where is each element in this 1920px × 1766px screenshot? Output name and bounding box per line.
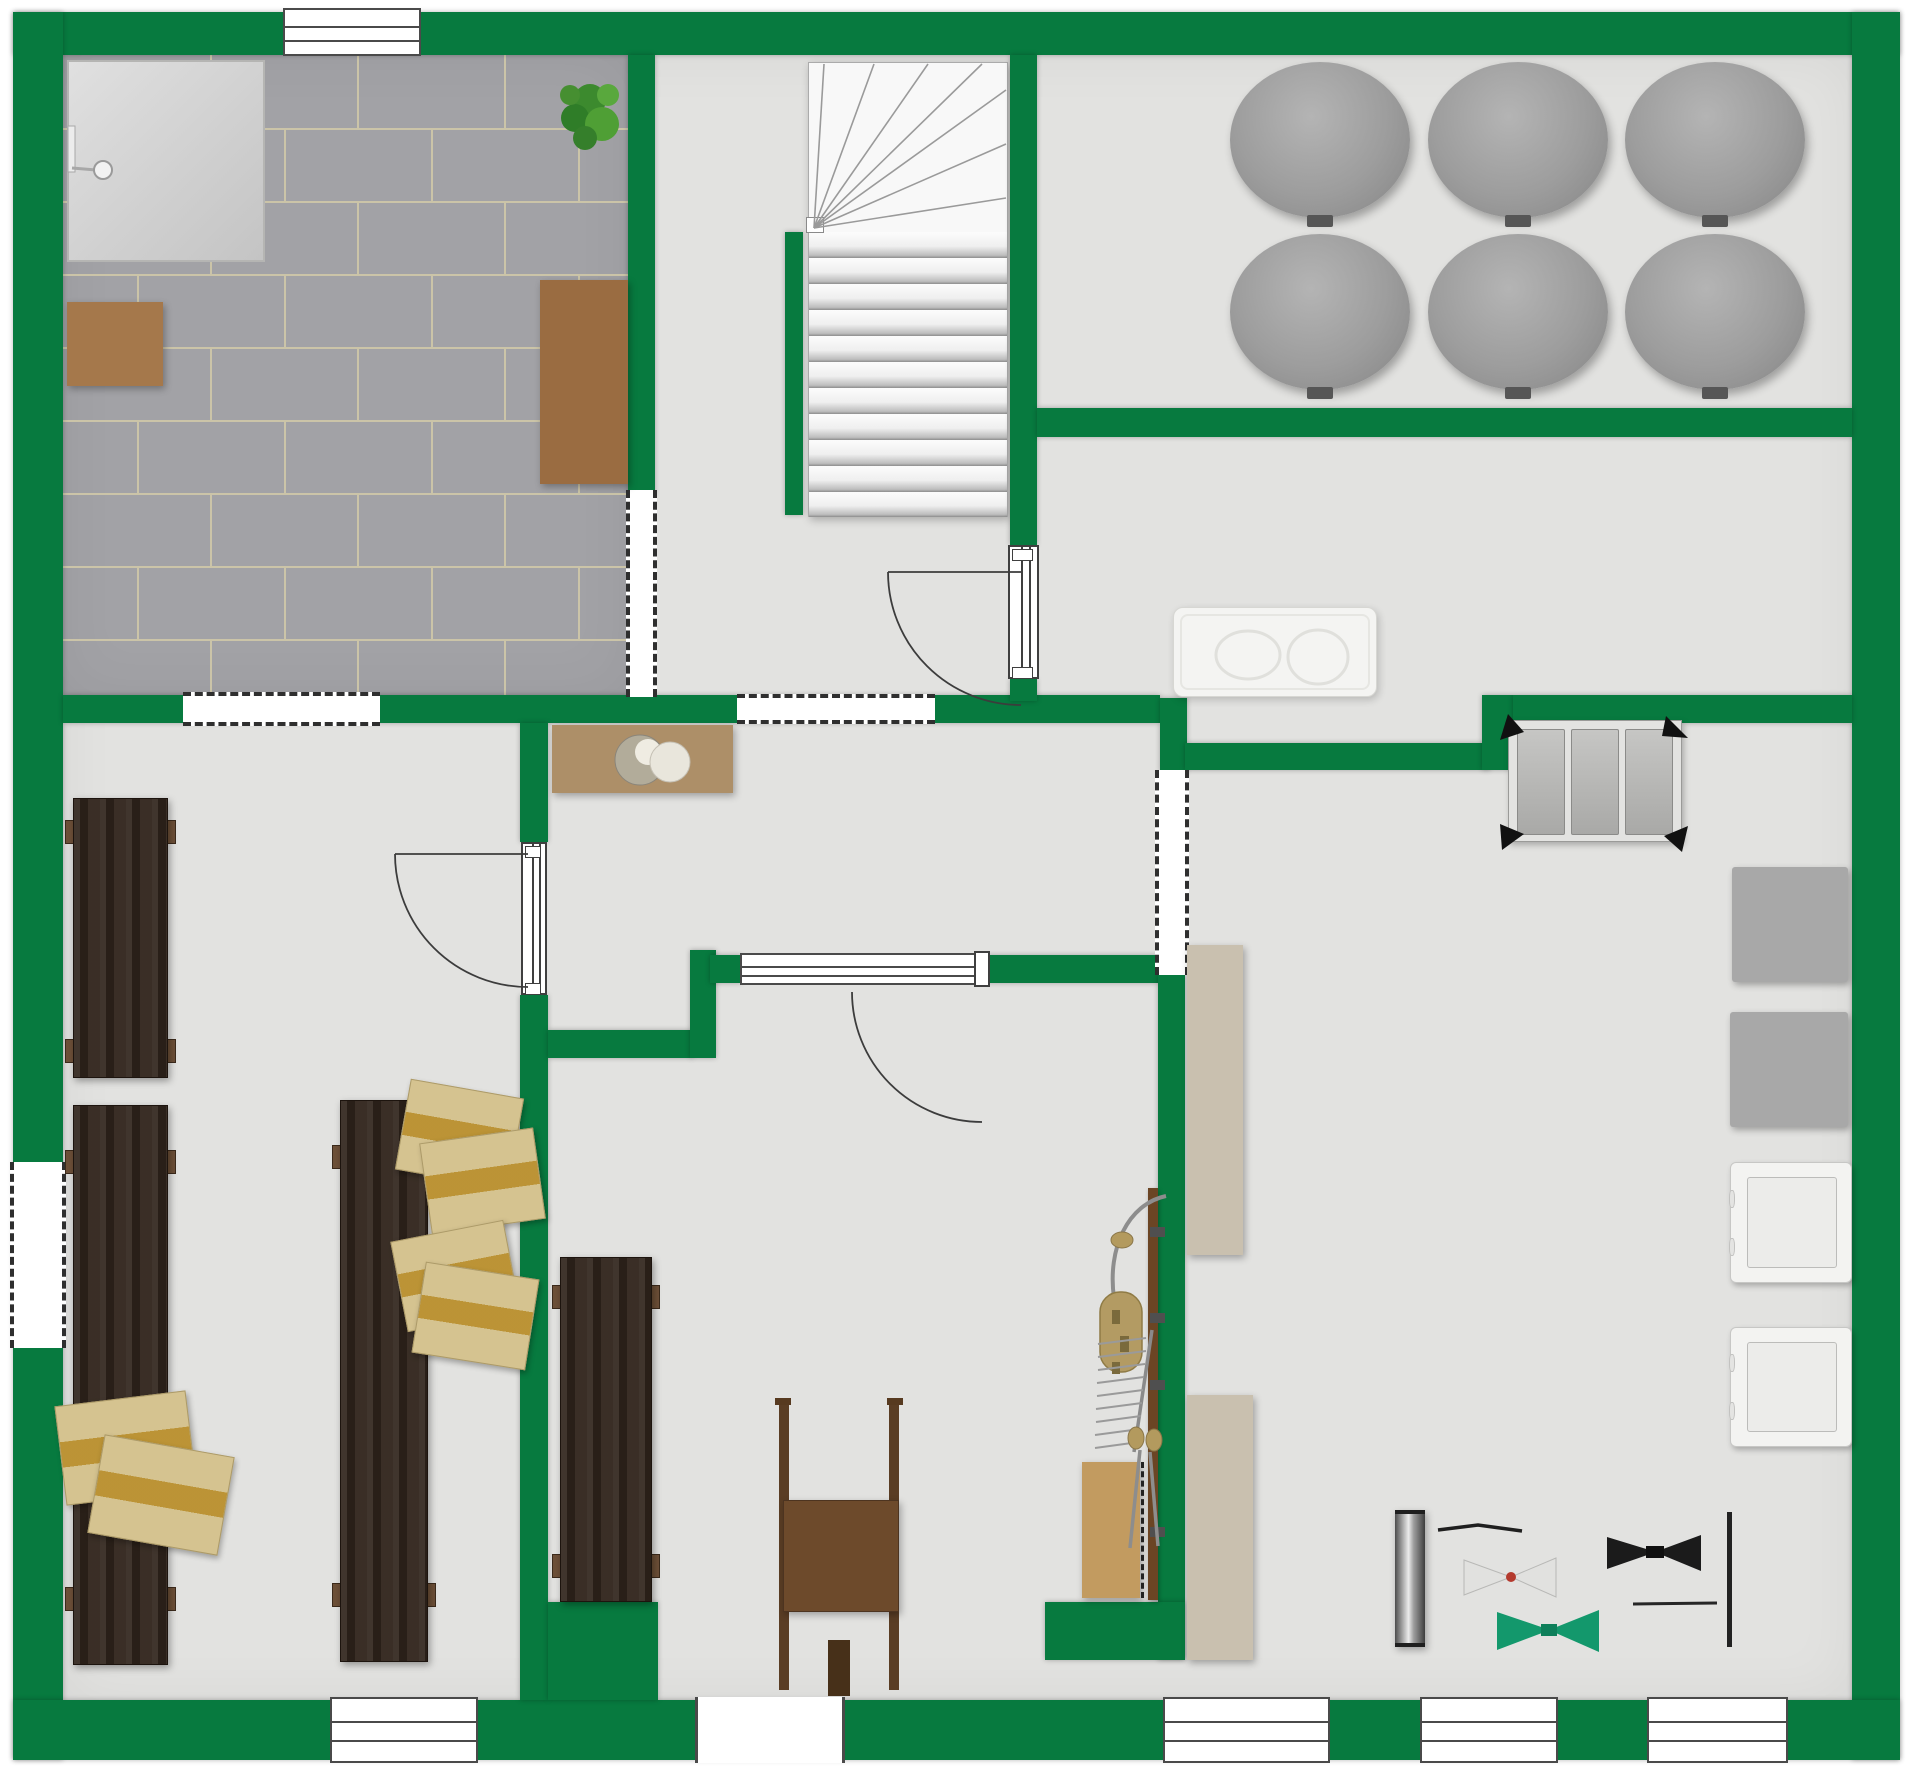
stair-tread <box>809 284 1007 310</box>
tile-joint <box>431 420 433 493</box>
board-dash-edge <box>1141 1462 1147 1598</box>
stair-tread <box>809 258 1007 284</box>
tile-joint <box>357 201 359 274</box>
cabinet-panel[interactable] <box>1571 729 1619 835</box>
door-frame-cap <box>525 983 541 995</box>
shelf-strip[interactable] <box>1187 1395 1253 1660</box>
bench-bracket <box>167 1150 176 1174</box>
wooden-crate[interactable] <box>419 1127 546 1234</box>
wood-board[interactable] <box>1082 1462 1140 1598</box>
bottom-window-middle[interactable] <box>1163 1697 1330 1763</box>
shelf-strip[interactable] <box>1187 945 1243 1255</box>
tile-joint <box>431 128 433 201</box>
tile-joint <box>357 55 359 128</box>
stair-tread <box>809 310 1007 336</box>
shower-enclosure[interactable] <box>67 60 265 262</box>
hall-south-window[interactable] <box>737 694 935 724</box>
stair-west-wall <box>785 232 803 515</box>
hall-east-wall <box>1010 55 1037 545</box>
tank-valve <box>1307 387 1333 399</box>
washer-door <box>1747 1342 1837 1432</box>
window-glass-line <box>1649 1740 1786 1742</box>
bathtub-rim <box>1180 614 1370 690</box>
stair-winder-pivot <box>806 217 824 233</box>
storage-tank[interactable] <box>1428 62 1608 218</box>
tile-joint <box>504 347 506 420</box>
tile-joint <box>63 493 628 495</box>
tile-joint <box>284 566 286 639</box>
storage-bench[interactable] <box>73 798 168 1078</box>
cabinet-panel[interactable] <box>1625 729 1673 835</box>
divider-foot-wall <box>1045 1602 1185 1660</box>
tile-joint <box>137 566 139 639</box>
bath-step-east-wall <box>1160 698 1187 772</box>
tile-joint <box>578 566 580 639</box>
floor-mat[interactable] <box>1730 1012 1848 1127</box>
door-frame-line <box>1021 547 1023 677</box>
cart-leg <box>828 1640 850 1696</box>
bath-south-wall-high <box>1513 695 1852 723</box>
storage-bench[interactable] <box>340 1100 428 1662</box>
tile-joint <box>431 566 433 639</box>
tank-valve <box>1702 387 1728 399</box>
tank-valve <box>1505 387 1531 399</box>
wooden-crate[interactable] <box>412 1262 540 1371</box>
left-wall-window[interactable] <box>10 1162 66 1348</box>
tiled-room-east-wall <box>628 55 655 495</box>
washer-hinge <box>1729 1402 1735 1420</box>
door-frame-cap <box>1012 667 1033 679</box>
tile-joint <box>284 128 286 201</box>
washing-machine[interactable] <box>1730 1327 1852 1447</box>
long-tool-bar[interactable] <box>1727 1512 1732 1647</box>
window-glass-line <box>285 26 419 28</box>
midroom-door-hinge[interactable] <box>974 951 990 987</box>
tile-joint <box>357 347 359 420</box>
storage-tank[interactable] <box>1625 62 1805 218</box>
washer-door <box>1747 1177 1837 1268</box>
outer-wall-left <box>13 12 63 1760</box>
hand-cart[interactable] <box>783 1500 899 1612</box>
washing-machine[interactable] <box>1730 1162 1852 1283</box>
stair-tread <box>809 362 1007 388</box>
outer-wall-right <box>1852 12 1900 1760</box>
stair-tread <box>809 388 1007 414</box>
tile-joint <box>504 55 506 128</box>
wood-table[interactable] <box>540 280 628 484</box>
window-glass-line <box>1165 1740 1328 1742</box>
midroom-south-wall-west <box>710 955 742 983</box>
door-frame-line <box>1029 547 1031 677</box>
storage-tank[interactable] <box>1230 62 1410 218</box>
southwest-step-wall <box>548 1602 658 1700</box>
floor-plan-canvas <box>0 0 1920 1766</box>
door-frame-cap <box>1012 549 1033 561</box>
tile-joint <box>357 639 359 695</box>
top-wall-window[interactable] <box>283 8 421 56</box>
washer-hinge <box>1729 1354 1735 1372</box>
window-glass-line <box>1649 1721 1786 1723</box>
tile-joint <box>578 128 580 201</box>
midroom-window[interactable] <box>740 953 986 985</box>
pegboard-hook <box>1150 1313 1165 1323</box>
tile-joint <box>63 274 628 276</box>
bench-bracket <box>651 1285 660 1309</box>
tile-joint <box>504 493 506 566</box>
bottom-window-right-2[interactable] <box>1647 1697 1788 1763</box>
tank-valve <box>1307 215 1333 227</box>
hall-east-wall-stub <box>1010 679 1037 701</box>
window-glass-line <box>742 966 984 968</box>
door-frame-line <box>532 844 534 993</box>
stair-tread <box>809 414 1007 440</box>
bench-bracket <box>167 1039 176 1063</box>
tile-joint <box>137 420 139 493</box>
stair-tread <box>809 466 1007 492</box>
storage-tank[interactable] <box>1428 234 1608 390</box>
tile-joint <box>210 493 212 566</box>
window-glass-line <box>1165 1721 1328 1723</box>
cart-rail-cap <box>775 1398 791 1405</box>
storage-tank[interactable] <box>1625 234 1805 390</box>
stair-tread <box>809 492 1007 517</box>
stair-tread <box>809 232 1007 258</box>
bench-bracket <box>167 1587 176 1611</box>
washer-hinge <box>1729 1190 1735 1208</box>
pegboard-hook <box>1150 1380 1165 1390</box>
bathtub[interactable] <box>1173 607 1377 697</box>
storage-bench[interactable] <box>560 1257 652 1602</box>
door-frame-line <box>539 844 541 993</box>
window-glass-line <box>285 40 419 42</box>
nook-south-wall <box>548 1030 693 1058</box>
window-glass-line <box>332 1721 476 1723</box>
outer-wall-bottom <box>13 1700 1900 1760</box>
tankroom-south-wall <box>1037 408 1852 437</box>
pegboard-hook <box>1150 1527 1165 1537</box>
tile-joint <box>504 201 506 274</box>
stair-tread <box>809 336 1007 362</box>
pegboard-hook <box>1150 1227 1165 1237</box>
cabinet-panel[interactable] <box>1517 729 1565 835</box>
window-glass-line <box>1422 1721 1556 1723</box>
tank-valve <box>1702 215 1728 227</box>
window-glass-line <box>1422 1740 1556 1742</box>
tile-joint <box>63 566 628 568</box>
window-glass-line <box>332 1740 476 1742</box>
rolled-mat[interactable] <box>1395 1510 1425 1647</box>
door-frame-cap <box>525 846 541 858</box>
stair-door-frame[interactable] <box>1008 545 1039 679</box>
tile-joint <box>63 639 628 641</box>
storage-bench[interactable] <box>73 1105 168 1665</box>
bottom-window-right-1[interactable] <box>1420 1697 1558 1763</box>
tile-joint <box>210 639 212 695</box>
storeroom-east-wall-upper <box>520 723 548 842</box>
tiled-east-window[interactable] <box>626 490 657 697</box>
passage-opening[interactable] <box>1155 770 1189 975</box>
washer-hinge <box>1729 1238 1735 1256</box>
tank-valve <box>1505 215 1531 227</box>
small-wood-table[interactable] <box>67 302 163 386</box>
tiled-south-window[interactable] <box>183 692 380 726</box>
tile-joint <box>284 274 286 347</box>
metal-cabinet[interactable] <box>1508 720 1682 842</box>
floor-mat[interactable] <box>1732 867 1848 982</box>
sideboard[interactable] <box>552 725 733 793</box>
storeroom-door-frame[interactable] <box>521 842 547 995</box>
stair-tread <box>809 440 1007 466</box>
window-glass-line <box>742 975 984 977</box>
bench-bracket <box>167 820 176 844</box>
tile-joint <box>504 639 506 695</box>
tile-joint <box>210 347 212 420</box>
tile-joint <box>431 274 433 347</box>
tool-pegboard[interactable] <box>1148 1188 1158 1600</box>
midroom-south-wall-east <box>986 955 1160 983</box>
storage-tank[interactable] <box>1230 234 1410 390</box>
tile-joint <box>357 493 359 566</box>
tile-joint <box>284 420 286 493</box>
bath-south-wall-low <box>1185 743 1490 770</box>
bench-bracket <box>651 1554 660 1578</box>
cart-rail-cap <box>887 1398 903 1405</box>
bench-bracket <box>427 1583 436 1607</box>
bottom-door-middle[interactable] <box>695 1697 845 1763</box>
bottom-window-left[interactable] <box>330 1697 478 1763</box>
